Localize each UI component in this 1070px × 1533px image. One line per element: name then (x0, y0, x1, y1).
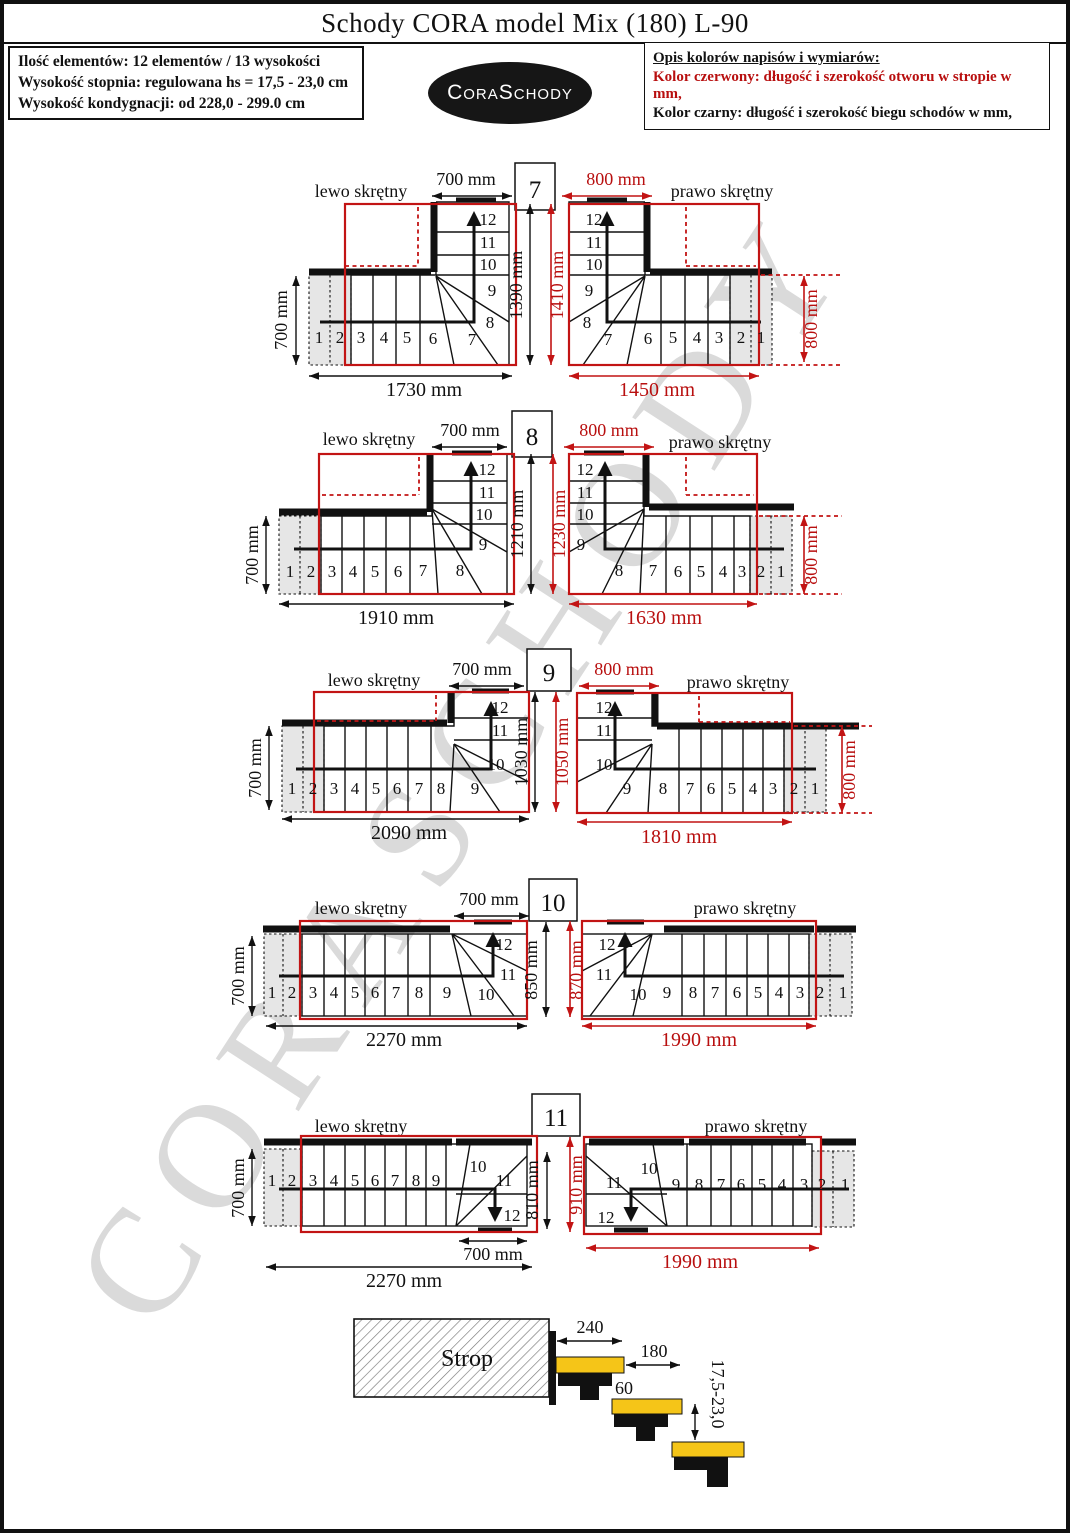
step-number: 3 (738, 562, 747, 581)
slab-label: Strop (441, 1346, 493, 1372)
step-number: 2 (816, 983, 825, 1002)
step-number: 2 (737, 328, 746, 347)
dim-label: 700 mm (228, 1158, 248, 1218)
post-1 (580, 1373, 599, 1400)
model-number: 9 (543, 660, 556, 687)
dim-label: 1210 mm (507, 490, 527, 559)
step-number: 9 (663, 983, 672, 1002)
legend-black-line: Kolor czarny: długość i szerokość biegu … (653, 105, 1041, 122)
dim-label: 1730 mm (386, 379, 463, 401)
legend-red-line: Kolor czerwony: długość i szerokość otwo… (653, 69, 1041, 103)
dim-label: 2270 mm (366, 1029, 443, 1051)
step-number: 3 (769, 779, 778, 798)
step-number: 7 (686, 779, 695, 798)
step-number: 12 (598, 1208, 615, 1227)
step-number: 8 (456, 561, 465, 580)
diagram-11-left: 700 mm 700 mm 2270 mm 810 mm 910 mm 1234… (228, 1136, 586, 1292)
parameter-storey-height: Wysokość kondygnacji: od 228,0 - 299.0 c… (18, 95, 354, 113)
step-side-view: Strop 240 180 60 17,5-23,0 (354, 1317, 744, 1487)
dim-label: 700 mm (245, 738, 265, 798)
step-number: 3 (800, 1175, 809, 1194)
dim-label: 180 (641, 1341, 668, 1361)
left-variant-label: lewo skrętny (328, 670, 420, 690)
step-number: 7 (468, 330, 477, 349)
dim-label: 800 mm (839, 740, 859, 800)
parameter-elements: Ilość elementów: 12 elementów / 13 wysok… (18, 53, 354, 71)
slab-edge-bar (549, 1331, 556, 1405)
model-number: 10 (541, 890, 566, 917)
coraschody-logo: CoraSchody (428, 62, 592, 124)
step-number: 11 (596, 721, 612, 740)
step-number: 10 (470, 1157, 487, 1176)
step-number: 9 (585, 281, 594, 300)
logo-text: CoraSchody (447, 81, 573, 105)
step-number: 2 (336, 328, 345, 347)
step-number: 5 (403, 328, 412, 347)
tread-1 (556, 1357, 624, 1373)
step-number: 11 (606, 1173, 622, 1192)
dim-label: 700 mm (436, 169, 496, 189)
step-number: 4 (778, 1175, 787, 1194)
dim-label: 700 mm (459, 889, 519, 909)
step-number: 12 (492, 698, 509, 717)
dim-label: 700 mm (228, 946, 248, 1006)
dim-label: 870 mm (566, 940, 586, 1000)
step-number: 3 (357, 328, 366, 347)
post-2 (636, 1414, 655, 1441)
step-number: 1 (757, 328, 766, 347)
step-number: 5 (371, 562, 380, 581)
step-number: 9 (672, 1175, 681, 1194)
step-number: 3 (309, 983, 318, 1002)
step-number: 2 (288, 983, 297, 1002)
wall-bars (279, 454, 430, 512)
step-number: 7 (604, 330, 613, 349)
step-number: 10 (586, 255, 603, 274)
step-number: 10 (478, 985, 495, 1004)
step-number: 1 (288, 779, 297, 798)
model-number: 7 (529, 177, 542, 204)
step-number: 9 (443, 983, 452, 1002)
step-number: 6 (429, 329, 438, 348)
dim-label: 800 mm (801, 525, 821, 585)
step-number: 7 (419, 561, 428, 580)
step-number: 12 (599, 935, 616, 954)
dim-label: 1410 mm (547, 251, 567, 320)
step-number: 11 (596, 965, 612, 984)
ceiling-opening-outline (582, 921, 816, 1019)
dim-label: 700 mm (440, 420, 500, 440)
dim-label: 1990 mm (662, 1251, 739, 1273)
dim-label: 240 (577, 1317, 604, 1337)
step-number: 10 (476, 505, 493, 524)
step-number: 4 (693, 328, 702, 347)
step-number: 11 (496, 1171, 512, 1190)
right-variant-label: prawo skrętny (705, 1116, 807, 1136)
dim-label: 700 mm (463, 1244, 523, 1264)
step-number: 12 (496, 935, 513, 954)
dim-label: 700 mm (271, 290, 291, 350)
step-number: 2 (307, 562, 316, 581)
parameter-step-height: Wysokość stopnia: regulowana hs = 17,5 -… (18, 74, 354, 92)
step-number: 1 (841, 1175, 850, 1194)
model-number: 11 (544, 1105, 568, 1132)
step-number: 4 (775, 983, 784, 1002)
step-number: 7 (711, 983, 720, 1002)
wall-bars (655, 693, 859, 726)
step-number: 1 (777, 562, 786, 581)
step-number: 12 (479, 460, 496, 479)
step-number: 11 (577, 483, 593, 502)
step-number: 6 (737, 1175, 746, 1194)
step-number: 1 (268, 1171, 277, 1190)
step-number: 11 (500, 965, 516, 984)
step-number: 8 (615, 561, 624, 580)
step-number: 5 (758, 1175, 767, 1194)
left-variant-label: lewo skrętny (315, 898, 407, 918)
step-number: 9 (471, 779, 480, 798)
step-number: 6 (394, 562, 403, 581)
dim-label: 850 mm (521, 940, 541, 1000)
step-number: 3 (796, 983, 805, 1002)
model-number: 8 (526, 424, 539, 451)
step-number: 7 (392, 983, 401, 1002)
step-number: 8 (689, 983, 698, 1002)
tread-2 (612, 1399, 682, 1414)
model-7-row: lewo skrętny 7 prawo skrętny 700 mm 700 … (271, 163, 842, 401)
step-number: 5 (351, 983, 360, 1002)
step-number: 11 (586, 233, 602, 252)
left-variant-label: lewo skrętny (315, 1116, 407, 1136)
step-number: 1 (811, 779, 820, 798)
step-number: 11 (479, 483, 495, 502)
step-number: 8 (412, 1171, 421, 1190)
wall-bars (309, 202, 434, 272)
right-variant-label: prawo skrętny (669, 432, 771, 452)
dim-label: 700 mm (242, 525, 262, 585)
step-number: 12 (586, 210, 603, 229)
step-number: 1 (268, 983, 277, 1002)
step-number: 8 (583, 313, 592, 332)
step-number: 10 (630, 985, 647, 1004)
step-number: 2 (288, 1171, 297, 1190)
right-variant-label: prawo skrętny (694, 898, 796, 918)
step-number: 11 (492, 721, 508, 740)
step-number: 6 (707, 779, 716, 798)
step-number: 12 (504, 1206, 521, 1225)
step-number: 8 (486, 313, 495, 332)
step-number: 7 (717, 1175, 726, 1194)
step-number: 8 (659, 779, 668, 798)
color-legend-box: Opis kolorów napisów i wymiarów: Kolor c… (644, 42, 1050, 130)
diagram-7-left: 700 mm 700 mm 1730 mm 1390 mm 1234567891… (271, 169, 530, 401)
step-number: 8 (695, 1175, 704, 1194)
step-number: 4 (330, 983, 339, 1002)
dim-label: 2270 mm (366, 1270, 443, 1292)
step-number: 3 (715, 328, 724, 347)
step-number: 5 (697, 562, 706, 581)
step-number: 1 (286, 562, 295, 581)
step-number: 3 (328, 562, 337, 581)
tread-3 (672, 1442, 744, 1457)
step-number: 11 (480, 233, 496, 252)
opening-dotted-edge (322, 457, 419, 495)
right-variant-label: prawo skrętny (671, 181, 773, 201)
step-number: 9 (479, 535, 488, 554)
step-number: 2 (757, 562, 766, 581)
step-number: 10 (480, 255, 497, 274)
step-number: 12 (596, 698, 613, 717)
step-number: 3 (309, 1171, 318, 1190)
left-variant-label: lewo skrętny (323, 429, 415, 449)
left-variant-label: lewo skrętny (315, 181, 407, 201)
diagram-10-right: 1990 mm 870 mm 123456789101112 (566, 921, 856, 1051)
step-number: 5 (669, 328, 678, 347)
dim-label: 1810 mm (641, 826, 718, 848)
opening-dotted-edge (345, 207, 418, 266)
step-number: 9 (577, 535, 586, 554)
step-number: 5 (372, 779, 381, 798)
step-number: 2 (790, 779, 799, 798)
step-number: 2 (309, 779, 318, 798)
step-number: 5 (754, 983, 763, 1002)
step-number: 12 (480, 210, 497, 229)
step-number: 6 (371, 1171, 380, 1190)
step-number: 6 (733, 983, 742, 1002)
step-number: 12 (577, 460, 594, 479)
dim-label: 800 mm (579, 420, 639, 440)
dim-label: 2090 mm (371, 822, 448, 844)
post-3 (707, 1457, 728, 1487)
diagram-11-right: 1990 mm 123456789101112 (584, 1137, 856, 1273)
dim-label: 1910 mm (358, 607, 435, 629)
dim-label: 1990 mm (661, 1029, 738, 1051)
step-number: 9 (623, 779, 632, 798)
parameters-box: Ilość elementów: 12 elementów / 13 wysok… (8, 46, 364, 120)
dim-label: 1030 mm (511, 718, 531, 787)
step-number: 6 (371, 983, 380, 1002)
dim-label: 1230 mm (549, 490, 569, 559)
step-number: 4 (349, 562, 358, 581)
step-number: 6 (393, 779, 402, 798)
step-number: 4 (351, 779, 360, 798)
right-variant-label: prawo skrętny (687, 672, 789, 692)
dim-label: 1390 mm (506, 251, 526, 320)
step-number: 5 (728, 779, 737, 798)
dim-label: 800 mm (594, 659, 654, 679)
step-number: 4 (749, 779, 758, 798)
drawing-sheet: CORASCHODY lewo skrętny 7 prawo skrętny … (0, 0, 1070, 1533)
step-number: 8 (437, 779, 446, 798)
step-number: 7 (649, 561, 658, 580)
dim-label: 1450 mm (619, 379, 696, 401)
dim-label: 700 mm (452, 659, 512, 679)
step-number: 4 (330, 1171, 339, 1190)
dim-label: 800 mm (586, 169, 646, 189)
dim-label: 17,5-23,0 (708, 1360, 728, 1429)
dim-label: 810 mm (522, 1160, 542, 1220)
step-number: 9 (488, 281, 497, 300)
step-number: 3 (330, 779, 339, 798)
step-number: 1 (315, 328, 324, 347)
step-number: 2 (818, 1175, 827, 1194)
step-number: 5 (351, 1171, 360, 1190)
dim-label: 60 (615, 1378, 633, 1398)
dim-label: 1630 mm (626, 607, 703, 629)
step-number: 7 (415, 779, 424, 798)
legend-title: Opis kolorów napisów i wymiarów: (653, 50, 1041, 67)
step-number: 4 (719, 562, 728, 581)
dim-label: 1050 mm (552, 718, 572, 787)
step-number: 10 (488, 755, 505, 774)
stair-diagrams-canvas: CORASCHODY lewo skrętny 7 prawo skrętny … (4, 4, 1070, 1533)
step-number: 7 (391, 1171, 400, 1190)
step-number: 10 (577, 505, 594, 524)
model-11-row: lewo skrętny 11 prawo skrętny 700 mm 700… (228, 1094, 856, 1292)
step-number: 9 (432, 1171, 441, 1190)
dim-label: 800 mm (801, 289, 821, 349)
step-number: 10 (641, 1159, 658, 1178)
step-number: 10 (596, 755, 613, 774)
step-number: 4 (380, 328, 389, 347)
step-number: 6 (644, 329, 653, 348)
step-number: 6 (674, 562, 683, 581)
step-number: 1 (839, 983, 848, 1002)
step-number: 8 (415, 983, 424, 1002)
